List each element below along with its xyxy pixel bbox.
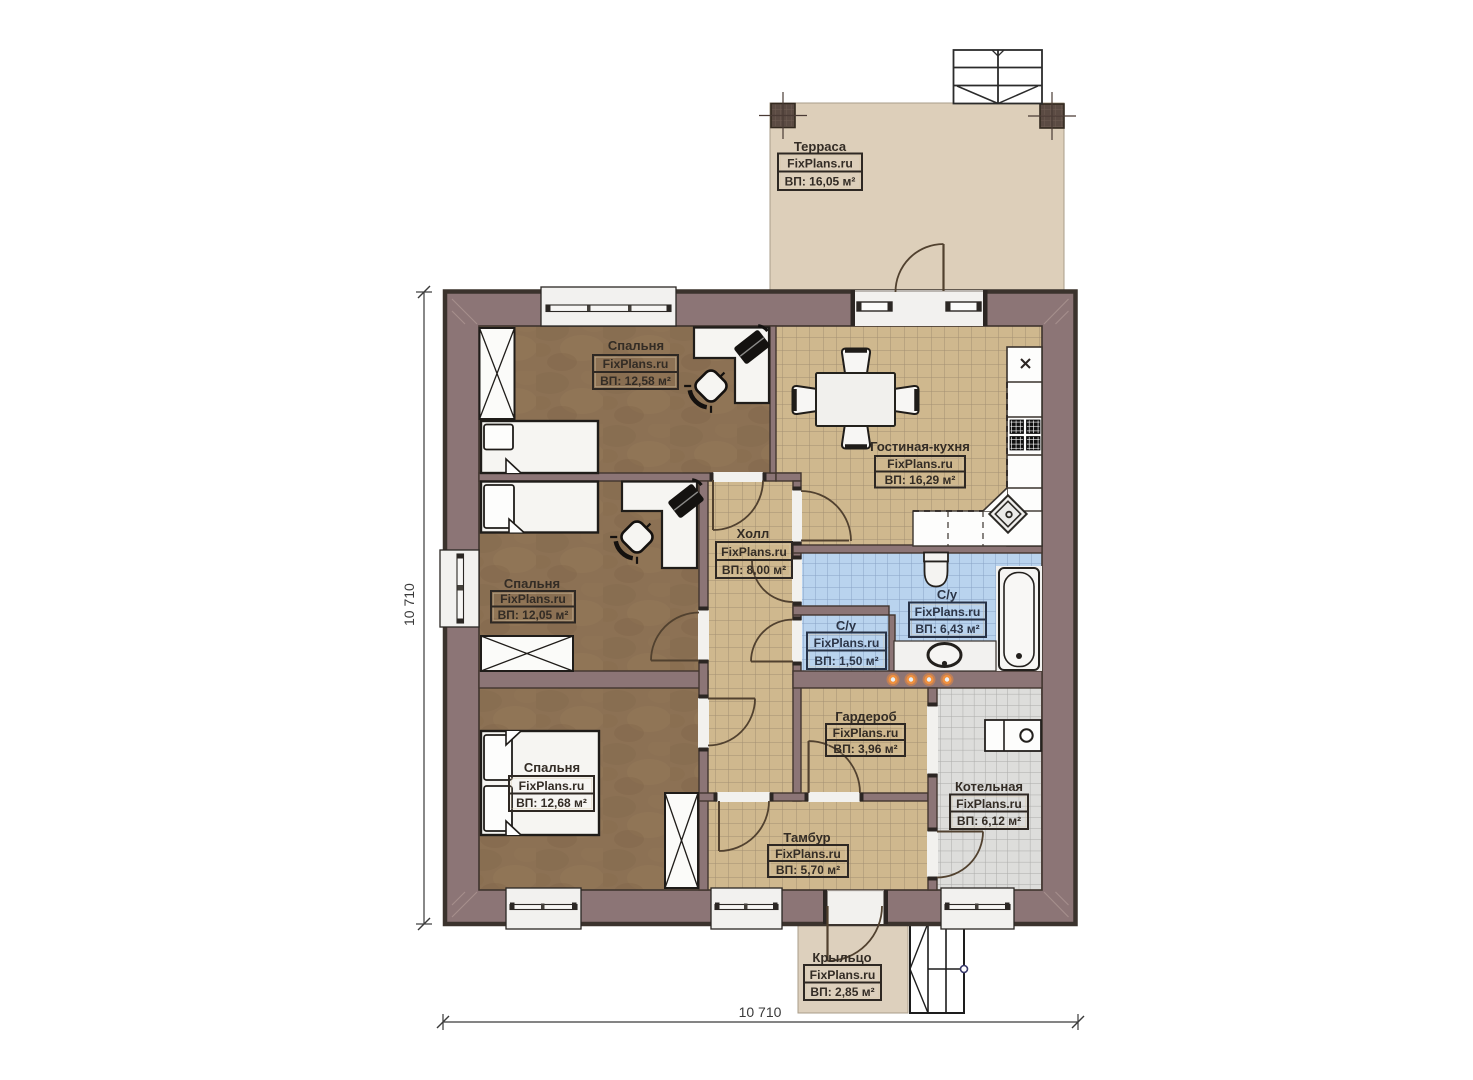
svg-text:Спальня: Спальня: [524, 760, 580, 775]
svg-text:FixPlans.ru: FixPlans.ru: [810, 968, 876, 982]
svg-text:FixPlans.ru: FixPlans.ru: [519, 779, 585, 793]
svg-text:FixPlans.ru: FixPlans.ru: [814, 636, 880, 650]
svg-text:FixPlans.ru: FixPlans.ru: [833, 726, 899, 740]
svg-text:ВП: 8,00 м²: ВП: 8,00 м²: [722, 563, 786, 577]
svg-text:FixPlans.ru: FixPlans.ru: [775, 847, 841, 861]
svg-text:ВП: 5,70 м²: ВП: 5,70 м²: [776, 863, 840, 877]
svg-text:Спальня: Спальня: [608, 338, 664, 353]
svg-text:ВП: 12,58 м²: ВП: 12,58 м²: [600, 374, 671, 388]
svg-text:Терраса: Терраса: [794, 139, 847, 154]
svg-text:ВП: 12,05 м²: ВП: 12,05 м²: [498, 608, 569, 622]
svg-text:ВП: 1,50 м²: ВП: 1,50 м²: [814, 654, 878, 668]
svg-text:Гардероб: Гардероб: [835, 709, 896, 724]
svg-text:Крыльцо: Крыльцо: [812, 950, 871, 965]
svg-text:ВП: 3,96 м²: ВП: 3,96 м²: [833, 742, 897, 756]
svg-text:Холл: Холл: [737, 526, 770, 541]
svg-text:С/у: С/у: [836, 618, 857, 633]
svg-text:FixPlans.ru: FixPlans.ru: [787, 157, 853, 171]
svg-text:FixPlans.ru: FixPlans.ru: [956, 797, 1022, 811]
svg-text:FixPlans.ru: FixPlans.ru: [887, 457, 953, 471]
svg-text:FixPlans.ru: FixPlans.ru: [500, 592, 566, 606]
svg-text:Спальня: Спальня: [504, 576, 560, 591]
svg-text:FixPlans.ru: FixPlans.ru: [603, 357, 669, 371]
svg-text:ВП: 12,68 м²: ВП: 12,68 м²: [516, 796, 587, 810]
svg-text:10 710: 10 710: [401, 583, 417, 626]
svg-text:ВП: 16,29 м²: ВП: 16,29 м²: [885, 473, 956, 487]
svg-text:ВП: 2,85 м²: ВП: 2,85 м²: [810, 985, 874, 999]
svg-text:10 710: 10 710: [739, 1004, 782, 1020]
svg-text:ВП: 16,05 м²: ВП: 16,05 м²: [785, 175, 856, 189]
svg-text:FixPlans.ru: FixPlans.ru: [915, 605, 981, 619]
svg-text:ВП: 6,43 м²: ВП: 6,43 м²: [915, 622, 979, 636]
svg-text:С/у: С/у: [937, 587, 958, 602]
svg-text:FixPlans.ru: FixPlans.ru: [721, 545, 787, 559]
svg-text:Гостиная-кухня: Гостиная-кухня: [870, 439, 970, 454]
svg-text:Котельная: Котельная: [955, 779, 1023, 794]
svg-text:Тамбур: Тамбур: [783, 830, 830, 845]
svg-text:ВП: 6,12 м²: ВП: 6,12 м²: [957, 814, 1021, 828]
